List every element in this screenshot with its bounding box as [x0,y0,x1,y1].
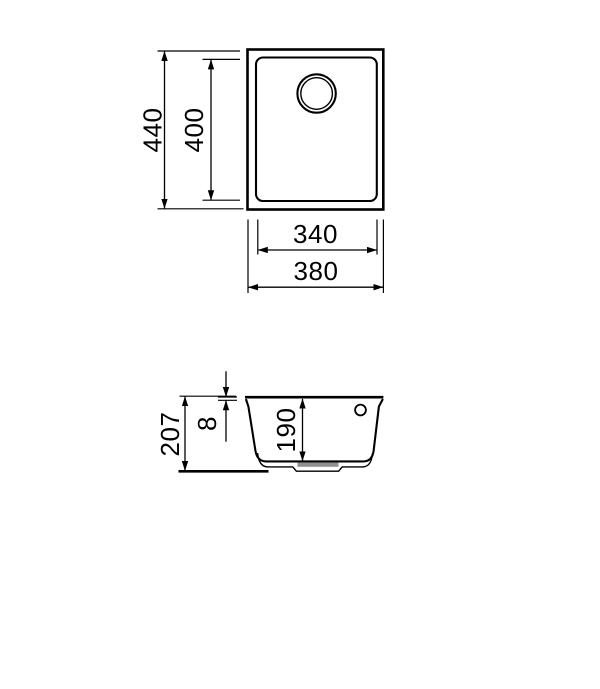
sink-dimension-drawing: 440 400 340 380 [0,0,600,689]
dimension-label: 400 [179,108,209,153]
technical-drawing-canvas: 440 400 340 380 [0,0,600,689]
sink-bowl-outline [256,58,377,202]
dim-rim-thickness: 8 [192,371,237,441]
dimension-label: 340 [293,219,338,249]
dimension-label: 8 [192,416,222,431]
dimension-label: 207 [155,412,185,457]
drain-circle-outer [297,74,335,112]
bowl-section-profile [246,399,383,461]
dimension-label: 380 [294,256,339,286]
dimension-label: 190 [271,408,301,453]
dim-bowl-depth: 190 [271,399,303,461]
overflow-hole-circle [355,405,366,416]
top-view: 440 400 340 380 [138,50,384,294]
dim-overall-depth: 207 [155,396,269,471]
section-view: 207 8 190 [155,371,383,471]
drain-recess-shade [298,463,339,467]
dim-bowl-height: 400 [179,59,240,200]
drain-circle-inner [301,78,333,110]
dimension-label: 440 [138,108,168,153]
dim-bowl-width: 340 [258,219,377,255]
